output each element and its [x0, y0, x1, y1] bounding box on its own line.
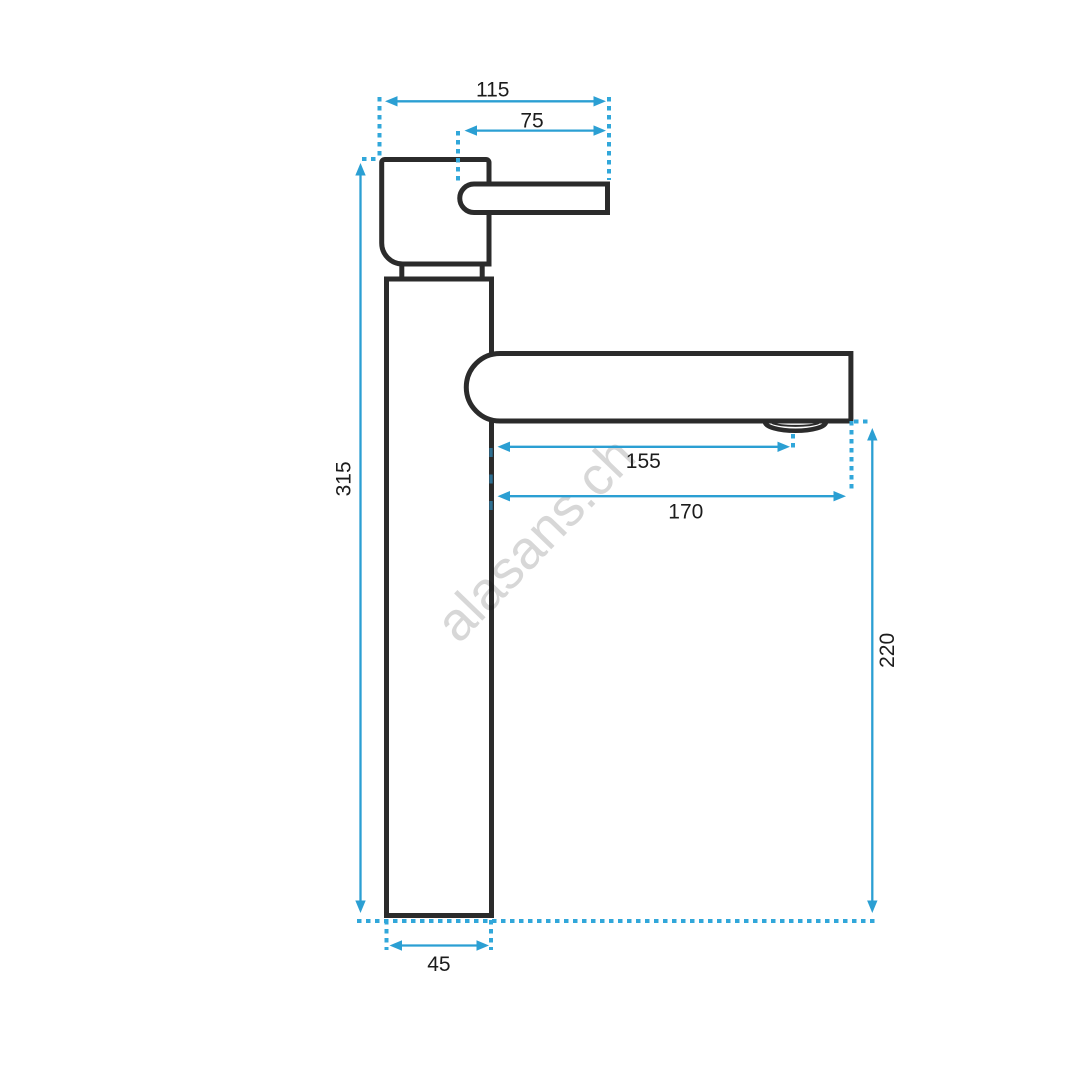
svg-text:115: 115	[476, 79, 509, 102]
svg-text:45: 45	[427, 953, 450, 976]
svg-text:155: 155	[626, 450, 661, 473]
svg-text:170: 170	[668, 501, 703, 524]
svg-text:75: 75	[520, 109, 543, 132]
svg-text:220: 220	[876, 633, 899, 668]
svg-text:315: 315	[333, 461, 356, 496]
